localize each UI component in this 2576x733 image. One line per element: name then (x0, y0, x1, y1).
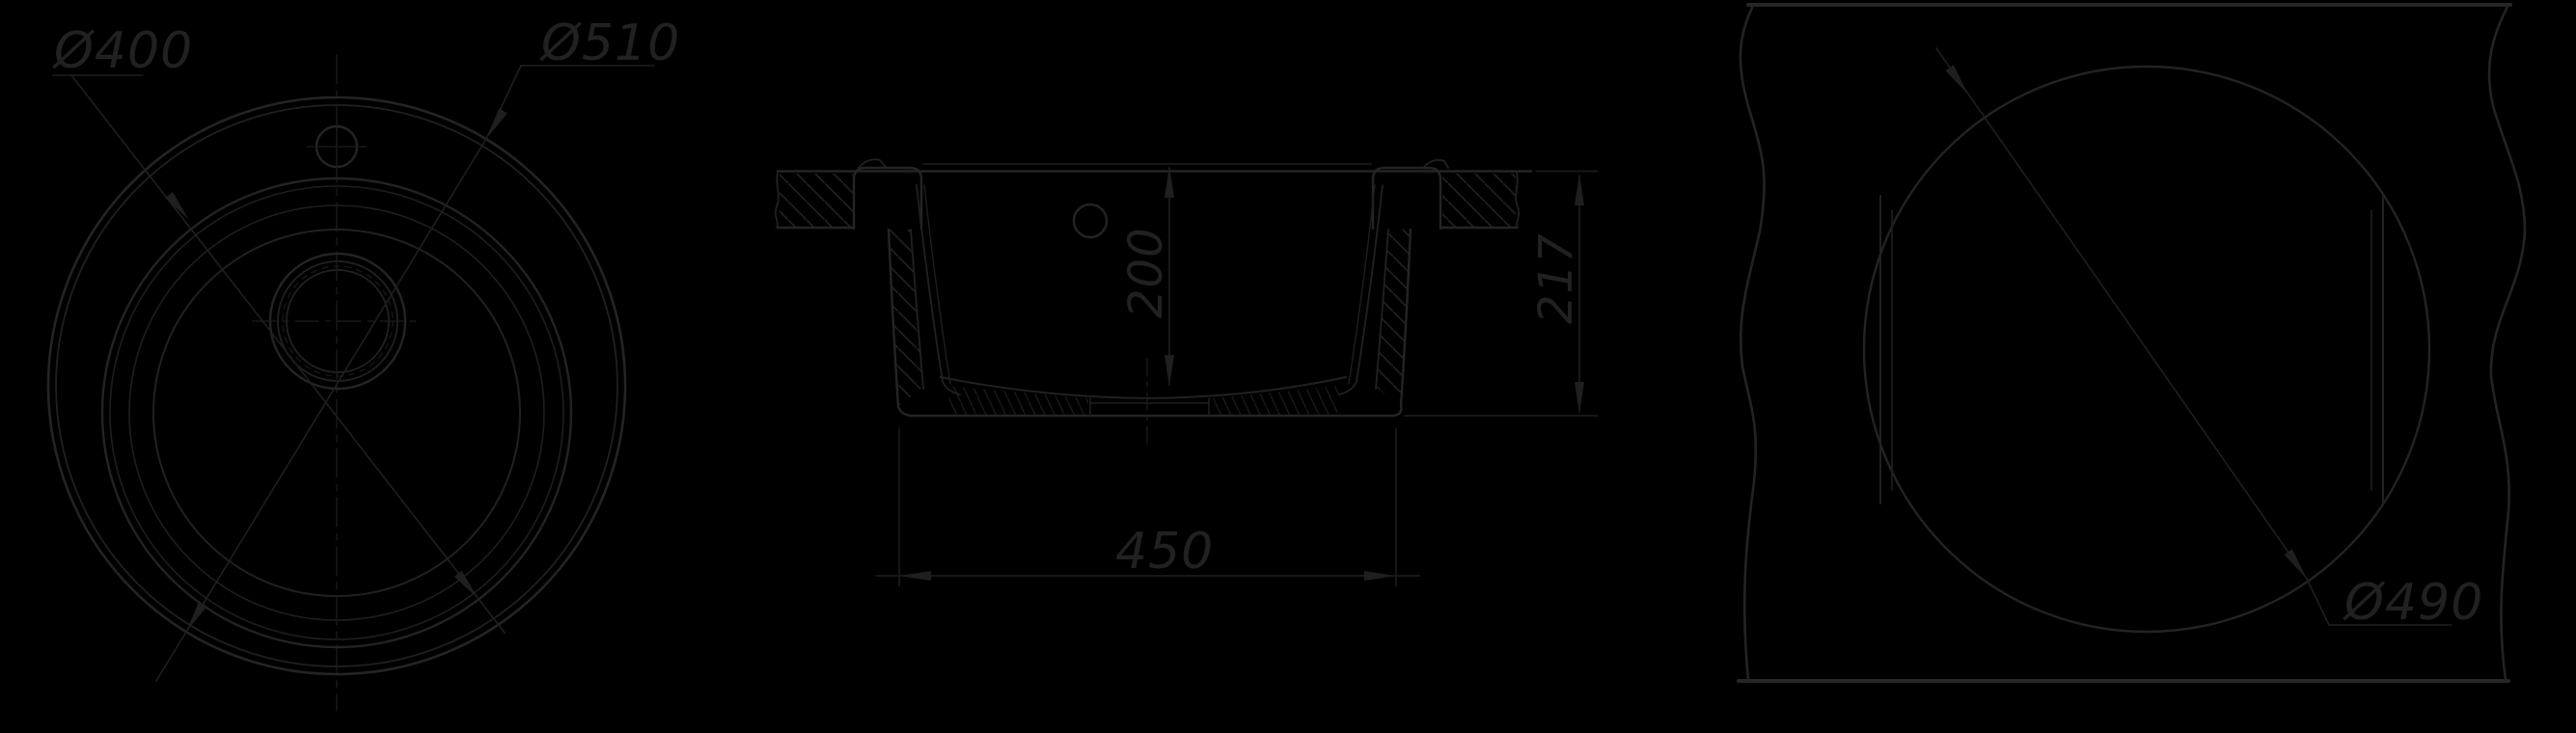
drawing-canvas: Ø400 Ø510 (0, 0, 2576, 733)
sink-technical-drawing: Ø400 Ø510 (0, 0, 2576, 733)
label-depth: 200 (1119, 227, 1173, 318)
label-rim-diameter: Ø510 (539, 14, 680, 72)
label-bowl-diameter: Ø400 (52, 22, 193, 80)
label-cutout-diameter: Ø490 (2343, 574, 2483, 632)
left-counter-hatch (780, 174, 853, 227)
right-counter-hatch (1442, 174, 1516, 227)
label-height: 217 (1529, 232, 1583, 324)
label-bottom-width: 450 (1115, 523, 1214, 581)
